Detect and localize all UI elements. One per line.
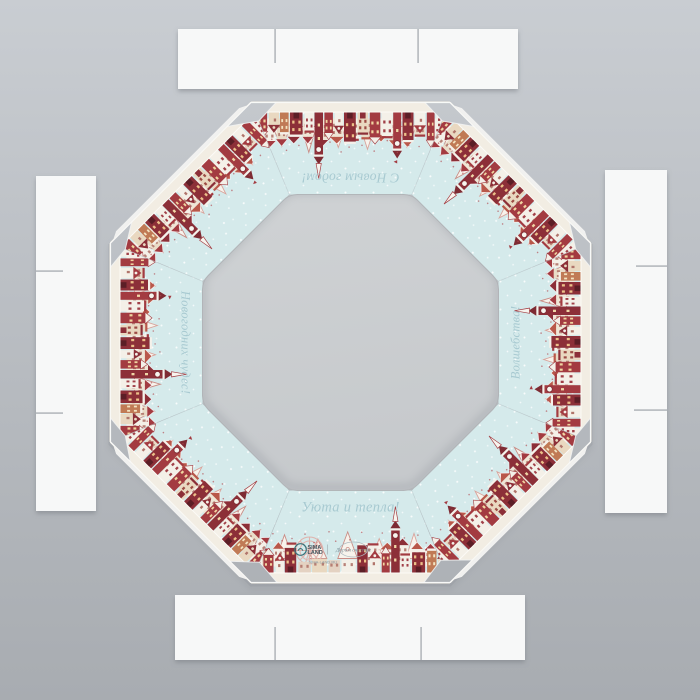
svg-text:С Новым годом!: С Новым годом! <box>301 171 399 186</box>
svg-text:Новогодних чудес!: Новогодних чудес! <box>179 290 193 394</box>
svg-text:Дарим счастье: Дарим счастье <box>335 548 372 554</box>
svg-text:SIMA-LAND.RU: SIMA-LAND.RU <box>309 560 338 565</box>
svg-text:Уюта и тепла!: Уюта и тепла! <box>301 500 400 516</box>
svg-text:LAND: LAND <box>308 550 323 556</box>
svg-text:Волшебства!: Волшебства! <box>509 306 523 380</box>
